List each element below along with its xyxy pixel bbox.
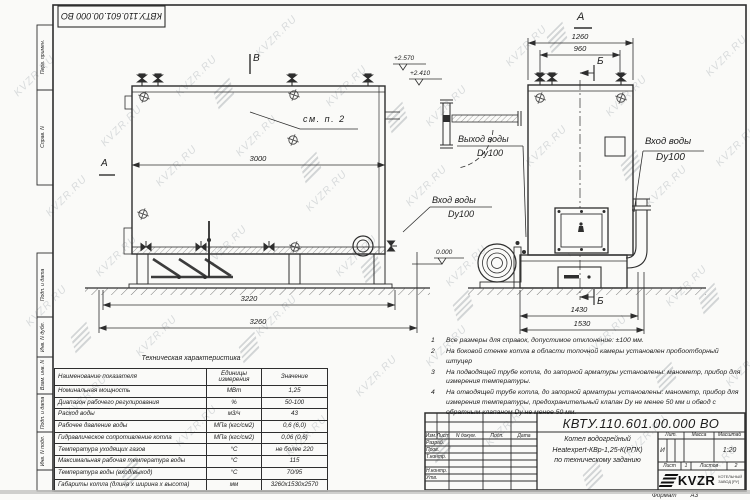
table-cell: МПа (кгс/см2) [207,433,262,445]
sheet-label: Лист [658,461,681,470]
lifting-lug-icon [135,206,150,221]
drain-valve-icon [388,241,398,251]
table-cell: °С [207,444,262,456]
dim-1260: 1260 [552,32,608,41]
lit-header: Лит. [658,431,684,439]
role-razrab: Разраб. [426,439,449,446]
label-inlet-mid-2: Dy100 [448,209,474,219]
section-marker-a-side: А [101,158,108,169]
view-marker-v: В [253,53,260,64]
dim-960: 960 [552,44,608,53]
role-tkontr: Т.контр. [426,453,449,460]
role-prov: Пров. [426,446,449,453]
table-cell: 0,6 (6,0) [262,421,327,433]
col-dokum: N докум. [449,432,483,439]
note-item: 3На подводящей трубе котла, до запорной … [431,368,744,388]
top-valve-icon [154,74,163,86]
notes-list: 1Все размеры для справок, допустимое отк… [431,336,744,419]
sheets-value: 2 [727,461,745,470]
role-nkontr: Н.контр. [426,467,449,474]
dim-1530: 1530 [554,319,610,328]
elevation-zero: 0.000 [436,249,452,256]
table-cell: МПа (кгс/см2) [207,421,262,433]
side-hatch [605,137,625,156]
label-outlet-1: Выход воды [458,134,509,144]
table-cell: не более 220 [262,444,327,456]
lifting-lug-icon [136,89,151,104]
company-logo: KVZR КОТЕЛЬНЫЙ ЗАВОД [РУ] [659,470,745,490]
tech-characteristics: Техническая характеристика Наименование … [54,355,328,492]
frame-label-inv-podl: Инв. N подл. [40,416,50,486]
table-cell: °С [207,468,262,480]
top-valve-icon [138,74,147,86]
lifting-lug-icon [285,132,300,147]
scale-header: Масштаб [714,431,745,439]
table-cell: 70/95 [262,468,327,480]
table-cell: 43 [262,409,327,421]
frame-label-sprav-n: Справ. N [40,102,50,172]
top-valve-icon [548,73,557,85]
note-item: 1Все размеры для справок, допустимое отк… [431,336,744,346]
top-valve-icon [536,73,545,85]
table-cell: 0,06 (0,6) [262,433,327,445]
top-valve-icon [364,74,373,86]
boiler-side-view [124,74,397,288]
drawing-title: Котел водогрейный Heatexpert-КВр-1,25-К(… [537,433,658,469]
lifting-lug-icon [532,90,547,105]
drawing-title-line2: Heatexpert-КВр-1,25-К(РПК) [552,446,642,457]
lifting-lug-icon [286,87,301,102]
table-cell: 1,25 [262,386,327,398]
table-cell: °С [207,456,262,468]
see-note-callout: см. п. 2 [303,114,346,124]
label-inlet-right-2: Dy100 [656,152,685,163]
blower-fan [478,241,526,288]
scan-edge-artifact [0,490,750,494]
kvzr-logo-text: KVZR [678,473,715,488]
drawing-title-line1: Котел водогрейный [564,435,631,446]
sheet-value: 1 [681,461,691,470]
table-cell: Температура воды (вход/выход) [55,468,207,480]
lifting-lug-icon [613,90,628,105]
ground [85,288,706,295]
table-cell: Расход воды [55,409,207,421]
boiler-front-view [478,73,651,300]
table-cell: Диапазон рабочего регулирования [55,398,207,410]
drain-piping [151,259,233,277]
table-cell: 115 [262,456,327,468]
kvzr-logo-subtext: КОТЕЛЬНЫЙ ЗАВОД [РУ] [718,475,742,484]
drawing-sheet: KVZR.RUKVZR.RUKVZR.RUKVZR.RUKVZR.RUKVZR.… [0,0,750,500]
table-cell: % [207,398,262,410]
tech-table: Наименование показателя Единицы измерени… [54,368,328,492]
dim-3220: 3220 [221,294,277,303]
table-cell: Температура уходящих газов [55,444,207,456]
mass-header: Масса [684,431,714,439]
col-header-value: Значение [262,369,327,386]
frame-label-perv-primen: Перв. примен. [40,22,50,92]
col-podp: Подп. [483,432,511,439]
drawing-title-line3: по техническому заданию [554,456,641,467]
inlet-pipe [626,199,651,268]
table-cell: 50-100 [262,398,327,410]
top-valve-icon [617,73,626,85]
section-marker-b-top: Б [597,56,604,67]
elevation-2410: +2.410 [410,70,430,77]
doc-number: КВТУ.110.601.00.000 ВО [537,414,745,432]
table-cell: Максимальная рабочая температура воды [55,456,207,468]
table-cell: МВт [207,386,262,398]
label-outlet-2: Dy100 [477,148,503,158]
tech-table-title: Техническая характеристика [54,355,328,368]
markers-and-leaders [99,28,704,305]
scale-value: 1:20 [714,443,745,457]
table-cell: Рабочее давление воды [55,421,207,433]
elevation-marks [393,64,464,264]
top-stamp-number: КВТУ.110.601.00.000 ВО [58,6,165,27]
dim-3260: 3260 [230,317,286,326]
kvzr-stripes-icon [659,474,678,487]
table-cell: Номинальная мощность [55,386,207,398]
table-cell: м3/ч [207,409,262,421]
col-header-name: Наименование показателя [55,369,207,386]
top-valve-icon [288,74,297,86]
dim-1430: 1430 [551,305,607,314]
dim-3000: 3000 [230,154,286,163]
col-izm: Изм. [425,432,437,439]
col-data: Дата [511,432,537,439]
col-header-units: Единицы измерения [207,369,262,386]
lit-value: И [658,443,667,457]
col-list: Лист [437,432,449,439]
table-cell: Гидравлическое сопротивление котла [55,433,207,445]
elevation-2570: +2.570 [394,55,414,62]
role-utv: Утв. [426,474,449,481]
label-inlet-mid-1: Вход воды [432,195,476,205]
label-inlet-right-1: Вход воды [645,136,691,147]
sheets-label: Листов [691,461,727,470]
note-item: 2На боковой стенке котла в области топоч… [431,347,744,367]
view-marker-a-front: А [577,11,584,23]
